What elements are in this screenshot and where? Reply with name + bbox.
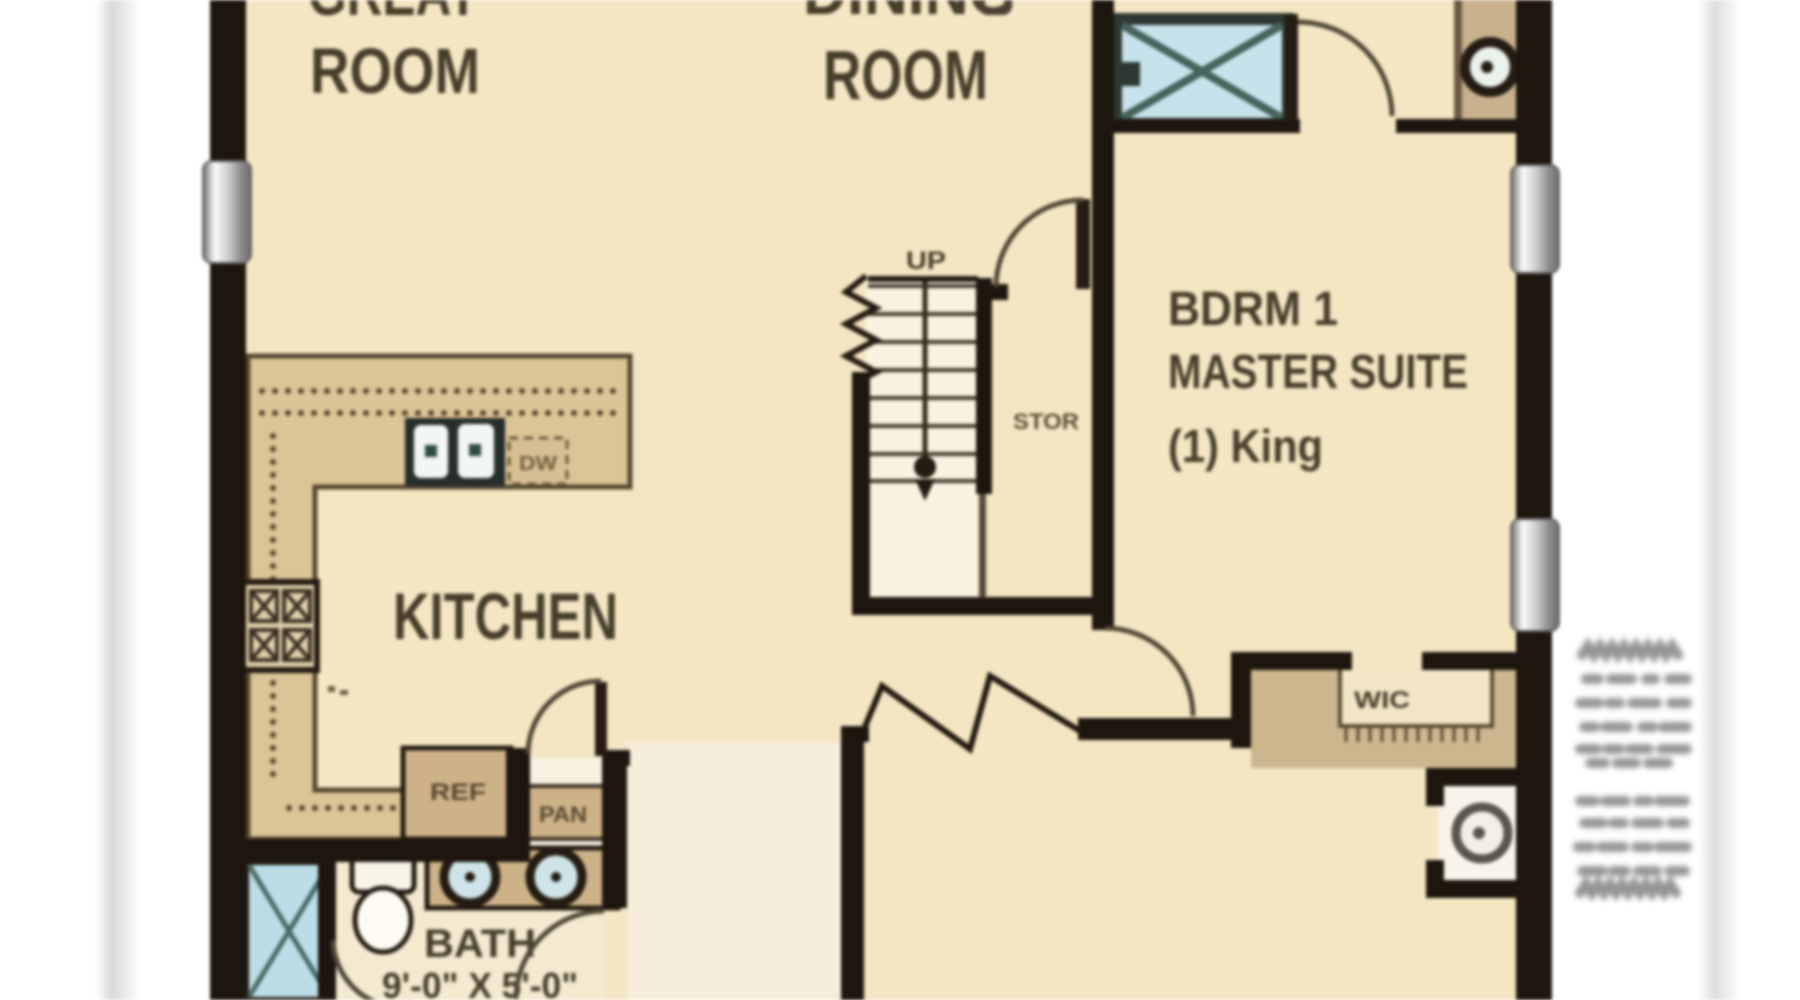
- svg-text:UP: UP: [906, 247, 946, 275]
- svg-text:KITCHEN: KITCHEN: [393, 579, 618, 653]
- svg-text:STOR: STOR: [1013, 409, 1079, 434]
- svg-text:WIC: WIC: [1354, 687, 1410, 714]
- svg-text:GREAT: GREAT: [308, 0, 478, 29]
- svg-text:PAN: PAN: [539, 802, 587, 827]
- svg-text:ROOM: ROOM: [823, 36, 988, 114]
- svg-text:MASTER SUITE: MASTER SUITE: [1168, 346, 1468, 399]
- svg-text:9'-0" X 5'-0": 9'-0" X 5'-0": [382, 965, 578, 1000]
- svg-text:DW: DW: [519, 453, 557, 475]
- svg-text:REF: REF: [430, 779, 486, 806]
- svg-text:BDRM 1: BDRM 1: [1168, 283, 1338, 336]
- svg-text:(1) King: (1) King: [1168, 420, 1323, 472]
- svg-text:BATH: BATH: [424, 922, 536, 966]
- svg-text:ROOM: ROOM: [310, 35, 480, 107]
